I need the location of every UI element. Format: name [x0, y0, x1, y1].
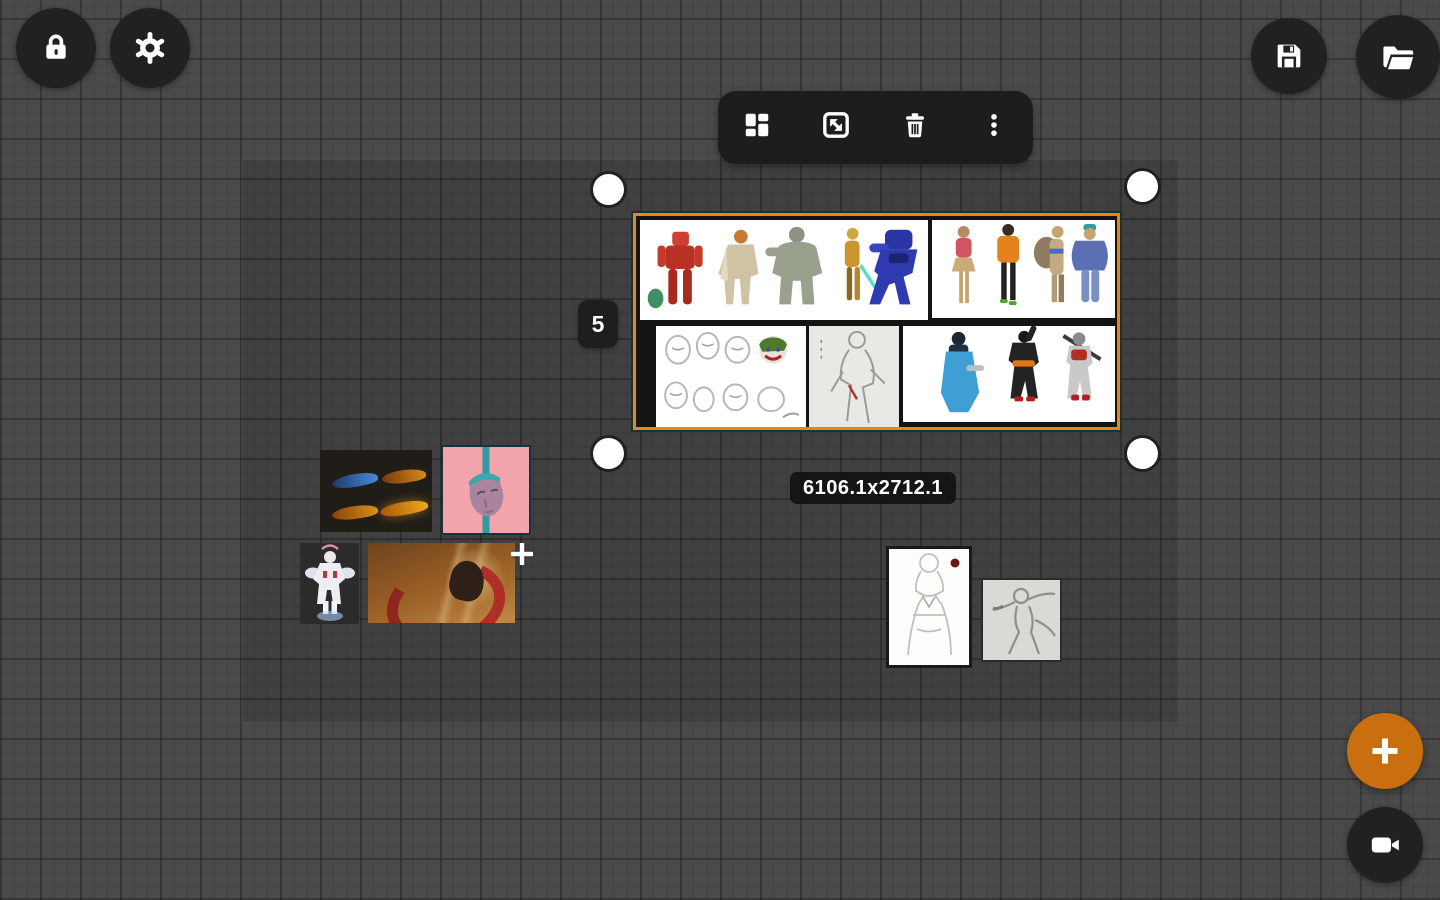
image-pink-pixel-head[interactable] [443, 447, 529, 533]
selection-handle-bottom-right[interactable] [1127, 438, 1158, 469]
diagonal-resize-icon [820, 109, 852, 146]
arrange-layout-button[interactable] [729, 100, 785, 156]
image-dress-figure-sketch[interactable] [886, 546, 972, 668]
video-camera-icon [1367, 827, 1403, 863]
dashboard-grid-icon [742, 110, 772, 145]
resize-button[interactable] [808, 100, 864, 156]
image-action-pose-sketch[interactable] [981, 578, 1062, 662]
save-button[interactable] [1251, 18, 1327, 94]
selection-handle-top-right[interactable] [1127, 171, 1158, 202]
orange-flame-2 [331, 502, 379, 523]
orange-flame-1 [381, 466, 427, 486]
selection-handle-bottom-left[interactable] [593, 438, 624, 469]
image-pencil-figure-sketch[interactable] [809, 326, 899, 427]
gear-icon [132, 30, 168, 66]
image-character-lineup-four[interactable] [932, 220, 1115, 318]
selection-handle-top-left[interactable] [593, 174, 624, 205]
add-button[interactable] [1347, 713, 1423, 789]
selection-count-text: 5 [592, 311, 605, 338]
open-folder-icon [1379, 38, 1417, 76]
group-expand-plus-icon[interactable] [508, 540, 536, 568]
image-character-lineup-five[interactable] [640, 220, 928, 320]
vertical-dots-icon [980, 111, 1008, 144]
image-warrior-trio[interactable] [903, 326, 1115, 422]
delete-button[interactable] [887, 100, 943, 156]
more-options-button[interactable] [966, 100, 1022, 156]
selected-image-group[interactable] [633, 213, 1120, 430]
selection-dimensions-label: 6106.1x2712.1 [790, 472, 956, 504]
settings-button[interactable] [110, 8, 190, 88]
selection-count-badge: 5 [578, 300, 618, 348]
image-flame-sprites[interactable] [320, 450, 432, 532]
lock-icon [39, 31, 73, 65]
lock-button[interactable] [16, 8, 96, 88]
context-toolbar [718, 91, 1033, 164]
trash-icon [900, 110, 930, 145]
red-dragon-ribbon [377, 548, 514, 623]
blue-flame [331, 469, 379, 491]
record-button[interactable] [1347, 807, 1423, 883]
canvas[interactable]: 5 6106.1x2712.1 [0, 0, 1440, 900]
open-file-button[interactable] [1356, 15, 1440, 99]
plus-icon [1365, 731, 1405, 771]
floppy-disk-icon [1272, 39, 1306, 73]
image-orange-dragon-scene[interactable] [368, 543, 515, 623]
selection-dimensions-text: 6106.1x2712.1 [803, 477, 943, 500]
image-face-sketch-sheet[interactable] [656, 326, 806, 427]
orange-flame-3 [379, 497, 429, 520]
image-white-mech[interactable] [300, 543, 359, 624]
